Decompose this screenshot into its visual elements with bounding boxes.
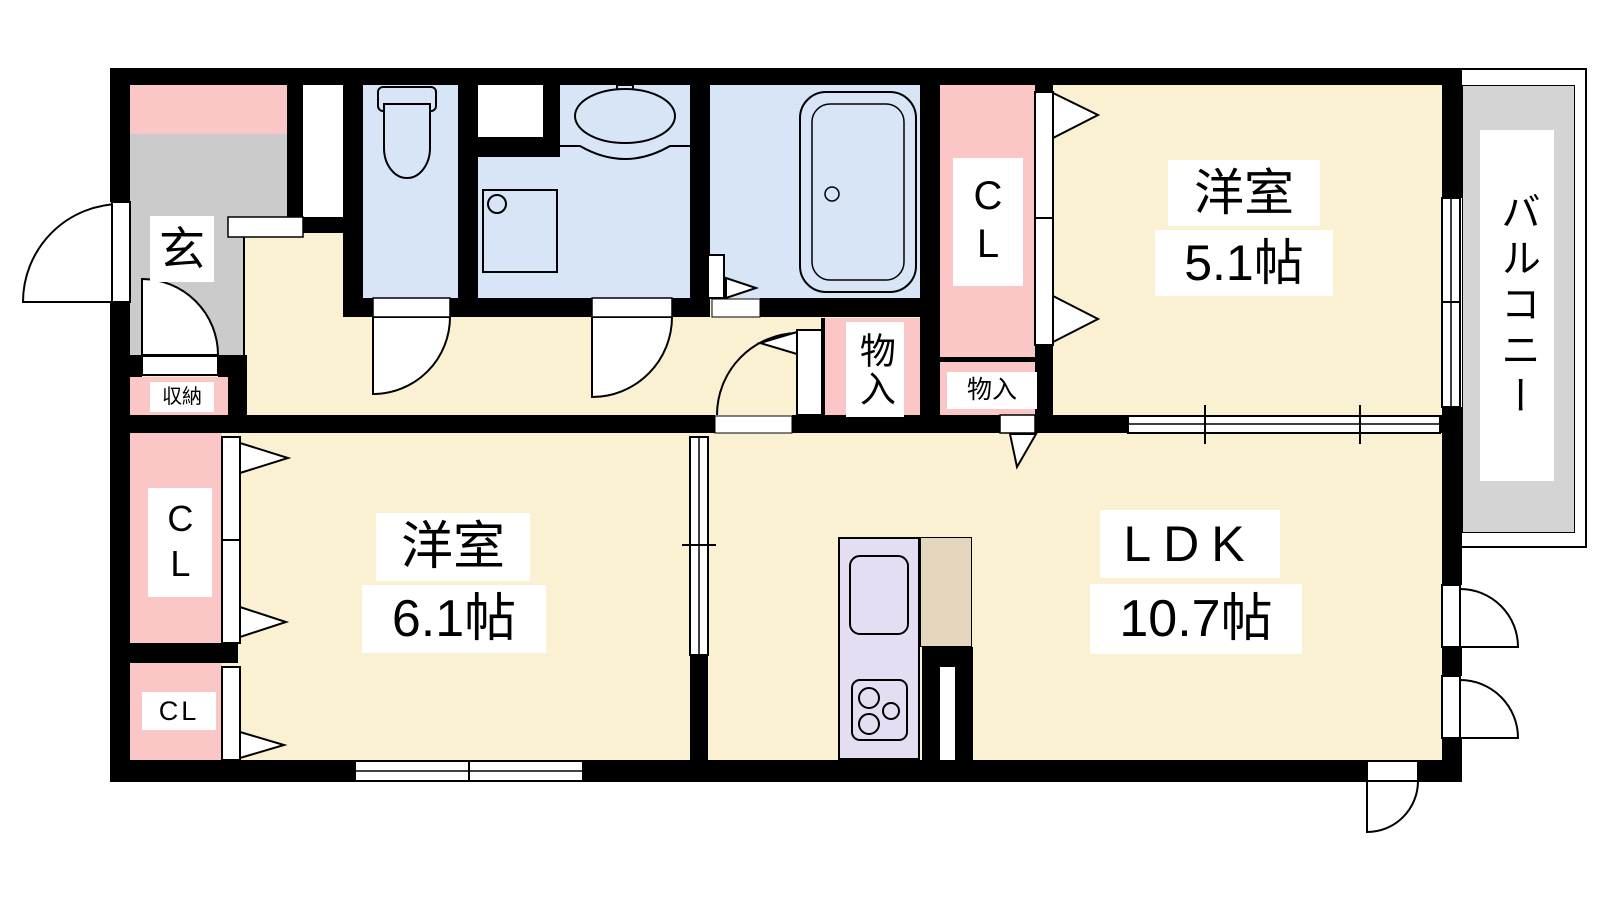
hall-closet-door-arrow-bottom <box>1053 296 1098 342</box>
entrance-storage-label: 収納 <box>150 382 214 412</box>
balcony-label: バルコニー <box>1480 130 1554 481</box>
bathroom-door-arrow <box>726 278 756 298</box>
bathroom-door-opening <box>712 299 760 317</box>
toilet-icon <box>378 87 436 178</box>
washroom-door-swing <box>592 317 672 397</box>
hall-closet-door-arrow-top <box>1053 93 1098 138</box>
western-room-b-size: 6.1帖 <box>362 585 546 653</box>
western-room-b-name: 洋室 <box>376 513 530 581</box>
hall-door-opening <box>715 416 792 433</box>
western-room-a-size: 5.1帖 <box>1155 230 1333 296</box>
ldk-name: LDK <box>1100 510 1280 578</box>
bathroom-door-leaf <box>708 255 724 298</box>
entrance-door-swing <box>142 279 218 355</box>
front-door-swing <box>23 204 121 302</box>
symbols-layer <box>0 0 1600 900</box>
closet-upper-door-arrow-bottom <box>240 607 286 637</box>
closet-upper-label: CL <box>148 488 212 597</box>
bottom-door-leaf <box>1367 761 1418 781</box>
washbasin-icon <box>560 85 690 159</box>
entrance-step <box>228 217 303 237</box>
bottom-door-swing <box>1367 781 1418 832</box>
toilet-door-leaf <box>373 298 450 317</box>
hall-closet-label: CL <box>953 158 1023 286</box>
kitchen-sink-icon <box>850 556 908 634</box>
closet-lower-door-track <box>222 667 240 760</box>
casement-window-2-leaf <box>1442 676 1460 738</box>
western-room-a-name: 洋室 <box>1168 160 1320 226</box>
storage-small-door-leaf <box>1000 415 1035 433</box>
closet-upper-door-arrow-top <box>240 443 288 473</box>
storage-small-label: 物入 <box>947 372 1037 409</box>
washing-machine-pan-icon <box>483 190 557 272</box>
storage-tall-label: 物入 <box>846 322 904 417</box>
toilet-door-swing <box>373 317 450 394</box>
closet-lower-label: CL <box>142 692 216 730</box>
front-door-leaf <box>112 202 130 302</box>
casement-window-2-swing <box>1460 680 1518 738</box>
stove-icon <box>852 680 907 740</box>
casement-window-1-swing <box>1460 589 1518 647</box>
bathtub-icon <box>800 92 916 292</box>
ldk-size: 10.7帖 <box>1090 584 1302 654</box>
closet-lower-door-arrow <box>240 732 284 758</box>
floor-plan: 玄 収納 CL 物入 物入 洋室 5.1帖 バルコニー CL CL 洋室 6.1… <box>0 0 1600 900</box>
casement-window-1-leaf <box>1442 585 1460 647</box>
entrance-label: 玄 <box>150 216 214 282</box>
washroom-door-leaf <box>592 298 672 317</box>
entrance-door-leaf <box>142 356 218 375</box>
hall-door-leaf <box>797 330 822 415</box>
storage-small-door-arrow <box>1010 434 1036 467</box>
